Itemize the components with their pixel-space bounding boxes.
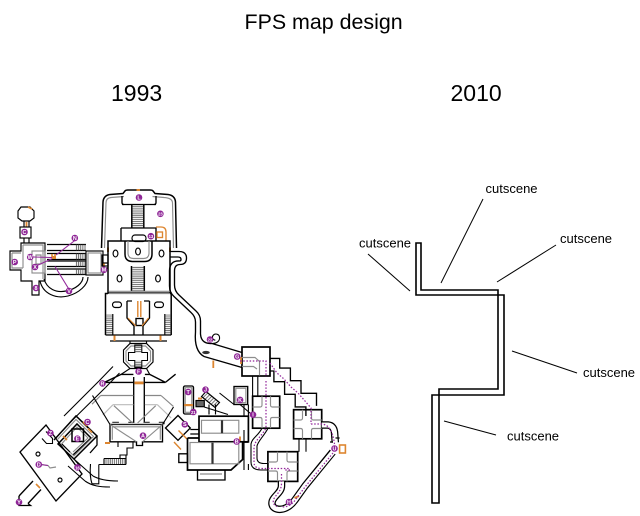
svg-text:D: D [37,462,41,468]
svg-text:X: X [33,265,37,271]
svg-text:U: U [333,446,337,452]
svg-text:E: E [76,437,80,443]
svg-text:M: M [102,268,107,274]
svg-text:C: C [86,420,90,426]
svg-text:B: B [235,439,239,445]
svg-text:1993: 1993 [111,80,162,106]
svg-text:N: N [73,236,77,242]
svg-text:K: K [238,398,242,404]
svg-text:P: P [13,260,17,266]
svg-text:H: H [287,500,291,506]
svg-text:V: V [67,289,71,295]
svg-text:FPS map design: FPS map design [245,10,403,34]
svg-text:cutscene: cutscene [560,231,612,246]
svg-text:J: J [204,388,207,394]
svg-text:cutscene: cutscene [507,429,559,444]
svg-text:cutscene: cutscene [583,365,635,380]
svg-text:C: C [23,230,27,236]
svg-text:cutscene: cutscene [359,236,411,251]
svg-text:23: 23 [158,212,163,217]
svg-text:21: 21 [191,410,196,415]
svg-text:16: 16 [75,465,80,470]
svg-text:G: G [235,354,239,360]
svg-text:2010: 2010 [451,80,502,106]
svg-text:R: R [101,381,105,387]
svg-text:A: A [141,434,145,440]
svg-text:cutscene: cutscene [486,181,538,196]
svg-text:13: 13 [149,234,154,239]
svg-text:8: 8 [35,286,38,292]
svg-text:22: 22 [208,337,213,342]
svg-text:S: S [183,422,187,428]
svg-text:Y: Y [17,500,21,506]
